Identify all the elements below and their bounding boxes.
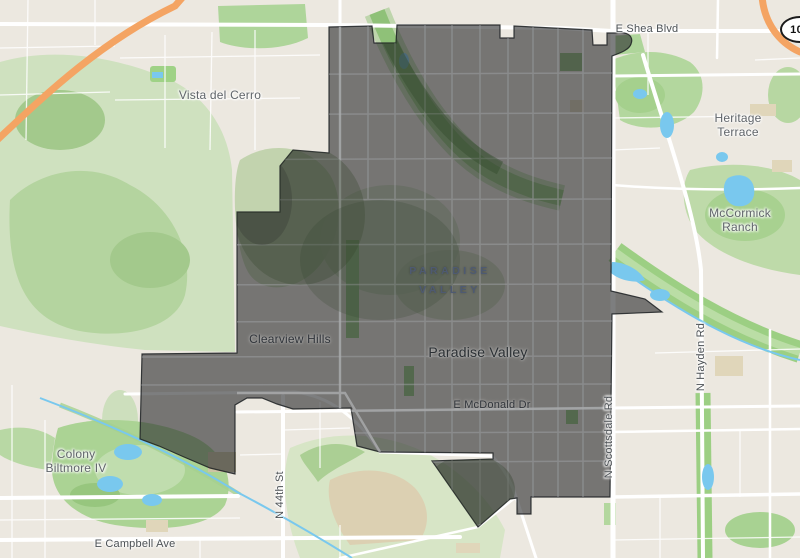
map-canvas[interactable] (0, 0, 800, 558)
map-viewport[interactable]: E Shea Blvd 101 Vista del Cerro Heritage… (0, 0, 800, 558)
